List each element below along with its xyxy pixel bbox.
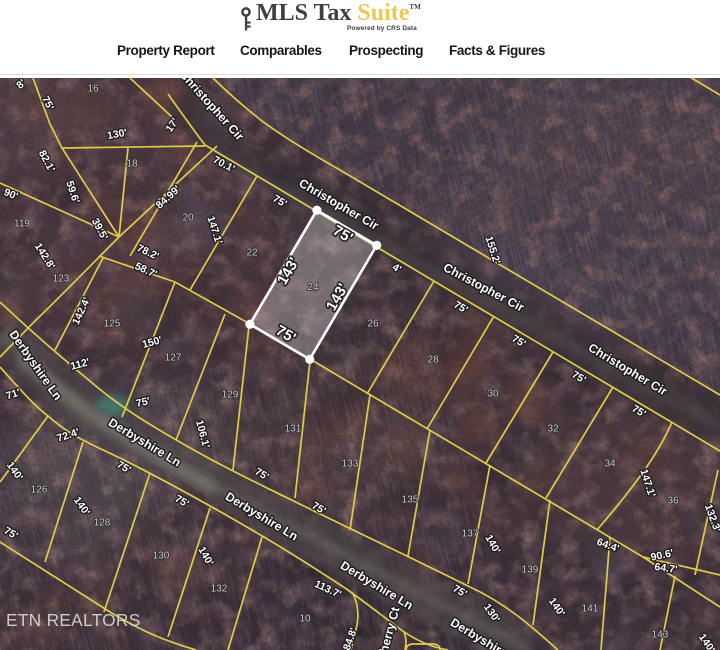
svg-text:141: 141 [582,604,599,615]
svg-text:130: 130 [153,551,170,562]
svg-text:32: 32 [547,424,559,435]
svg-text:119: 119 [14,219,30,230]
svg-text:131: 131 [285,424,302,435]
svg-text:28: 28 [427,355,439,366]
svg-text:24: 24 [307,282,319,293]
svg-text:137: 137 [462,529,479,540]
svg-text:18: 18 [126,159,138,170]
svg-text:126: 126 [31,485,48,496]
svg-text:10: 10 [299,614,311,625]
svg-text:20: 20 [182,213,194,224]
svg-text:135: 135 [402,495,419,506]
svg-text:30: 30 [487,389,499,400]
svg-text:26: 26 [367,319,379,330]
svg-text:143: 143 [652,630,669,641]
svg-text:ETN REALTORS: ETN REALTORS [6,610,141,630]
svg-text:132: 132 [211,584,228,595]
svg-text:22: 22 [246,248,258,259]
svg-text:128: 128 [94,518,111,529]
svg-text:129: 129 [222,390,239,401]
svg-text:16: 16 [87,84,99,95]
svg-text:133: 133 [342,459,359,470]
svg-text:36: 36 [667,496,679,507]
svg-text:34: 34 [604,459,616,470]
svg-text:125: 125 [104,319,121,330]
svg-text:139: 139 [522,565,539,576]
svg-text:123: 123 [53,274,70,285]
svg-text:127: 127 [165,353,182,364]
